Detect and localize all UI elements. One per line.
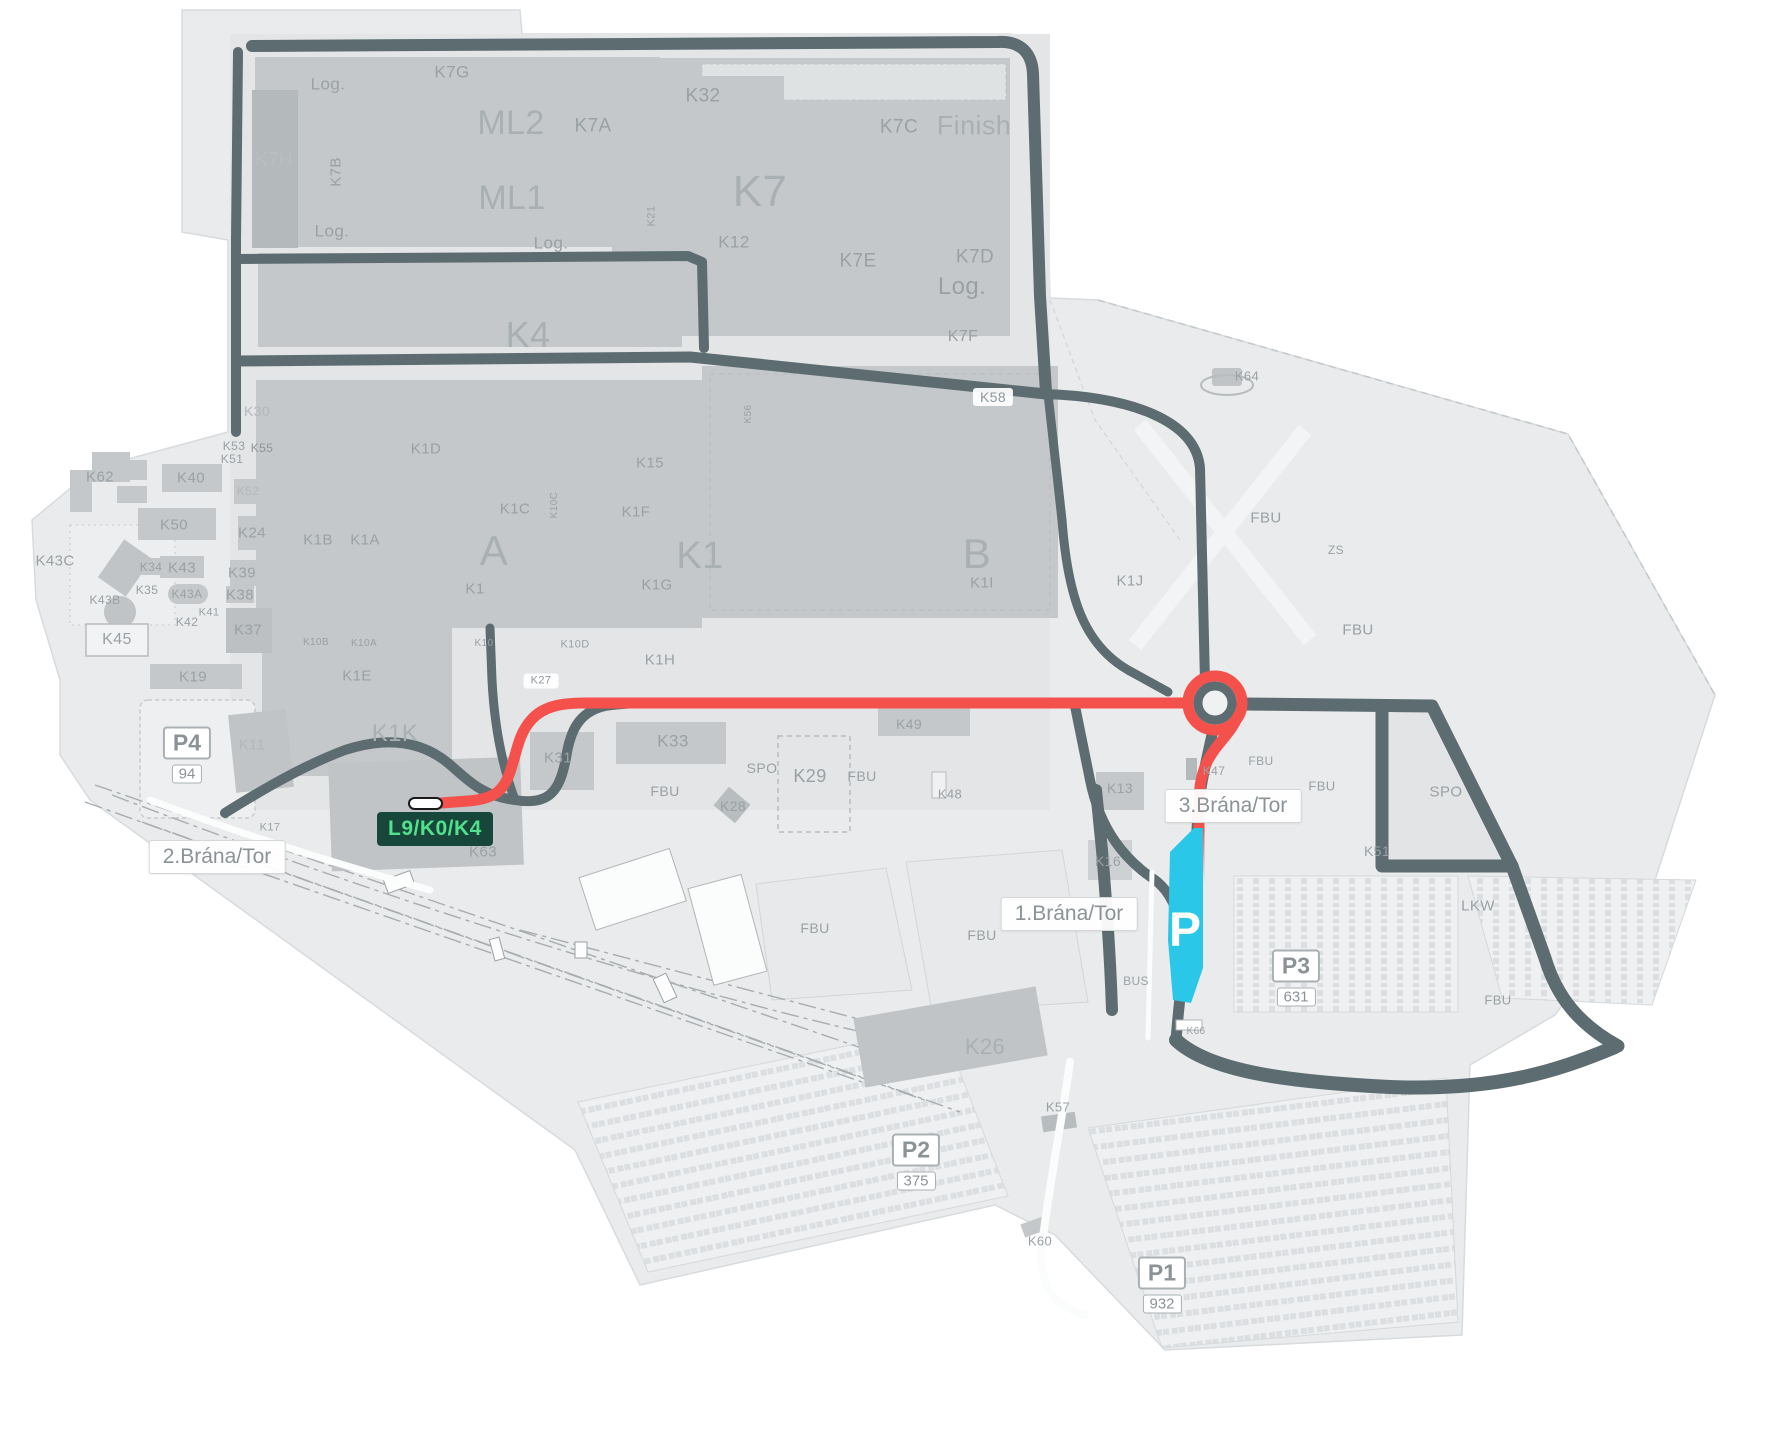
building-k40 bbox=[162, 464, 222, 492]
building-b bbox=[702, 366, 1058, 618]
building-k48 bbox=[932, 772, 946, 798]
building-k66 bbox=[1176, 1020, 1202, 1030]
parking-field-p3 bbox=[1234, 876, 1458, 1012]
building-k15 bbox=[622, 448, 680, 478]
destination-badge: L9/K0/K4 bbox=[377, 812, 493, 846]
building-k43b bbox=[104, 596, 136, 628]
parking-field-lkw bbox=[1468, 876, 1696, 1005]
building-k43 bbox=[160, 556, 204, 578]
building-k24 bbox=[238, 516, 278, 550]
building-k7h bbox=[252, 90, 298, 248]
building-k49 bbox=[878, 708, 970, 736]
building-k52 bbox=[234, 479, 264, 504]
building-k47 bbox=[1186, 758, 1197, 780]
building-k37 bbox=[226, 608, 272, 653]
building-k4 bbox=[258, 253, 682, 347]
visitor-parking-letter: P bbox=[1169, 903, 1201, 958]
building-k64 bbox=[1212, 368, 1242, 386]
building-k43a bbox=[168, 584, 208, 604]
building-k32 bbox=[664, 76, 784, 118]
factory-site-map: Log.K7GML2K7AK32K7CFinishK7HK7BML1K7Log.… bbox=[0, 0, 1772, 1453]
building-k19 bbox=[150, 664, 242, 689]
building-k33 bbox=[616, 722, 726, 764]
building-ml-complex bbox=[255, 57, 660, 247]
building-k45 bbox=[86, 624, 148, 656]
building-k38 bbox=[226, 586, 254, 603]
route-destination-marker bbox=[409, 798, 442, 809]
site-map-canvas bbox=[0, 0, 1772, 1453]
building-k50 bbox=[138, 508, 216, 540]
building-k39 bbox=[230, 560, 256, 586]
